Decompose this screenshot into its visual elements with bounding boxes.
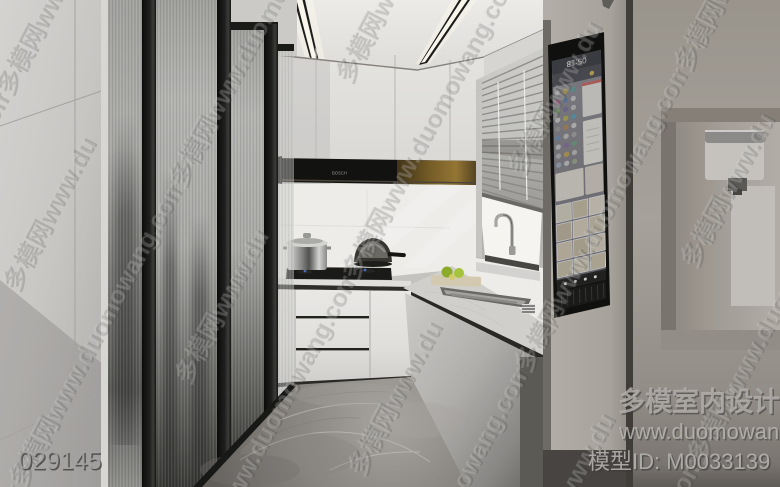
- svg-text:www.duomowang: www.duomowang: [618, 419, 780, 444]
- svg-text:多模室内设计: 多模室内设计: [618, 386, 780, 417]
- svg-text:029145: 029145: [18, 447, 101, 475]
- svg-text:模型ID: M0033139: 模型ID: M0033139: [588, 449, 770, 474]
